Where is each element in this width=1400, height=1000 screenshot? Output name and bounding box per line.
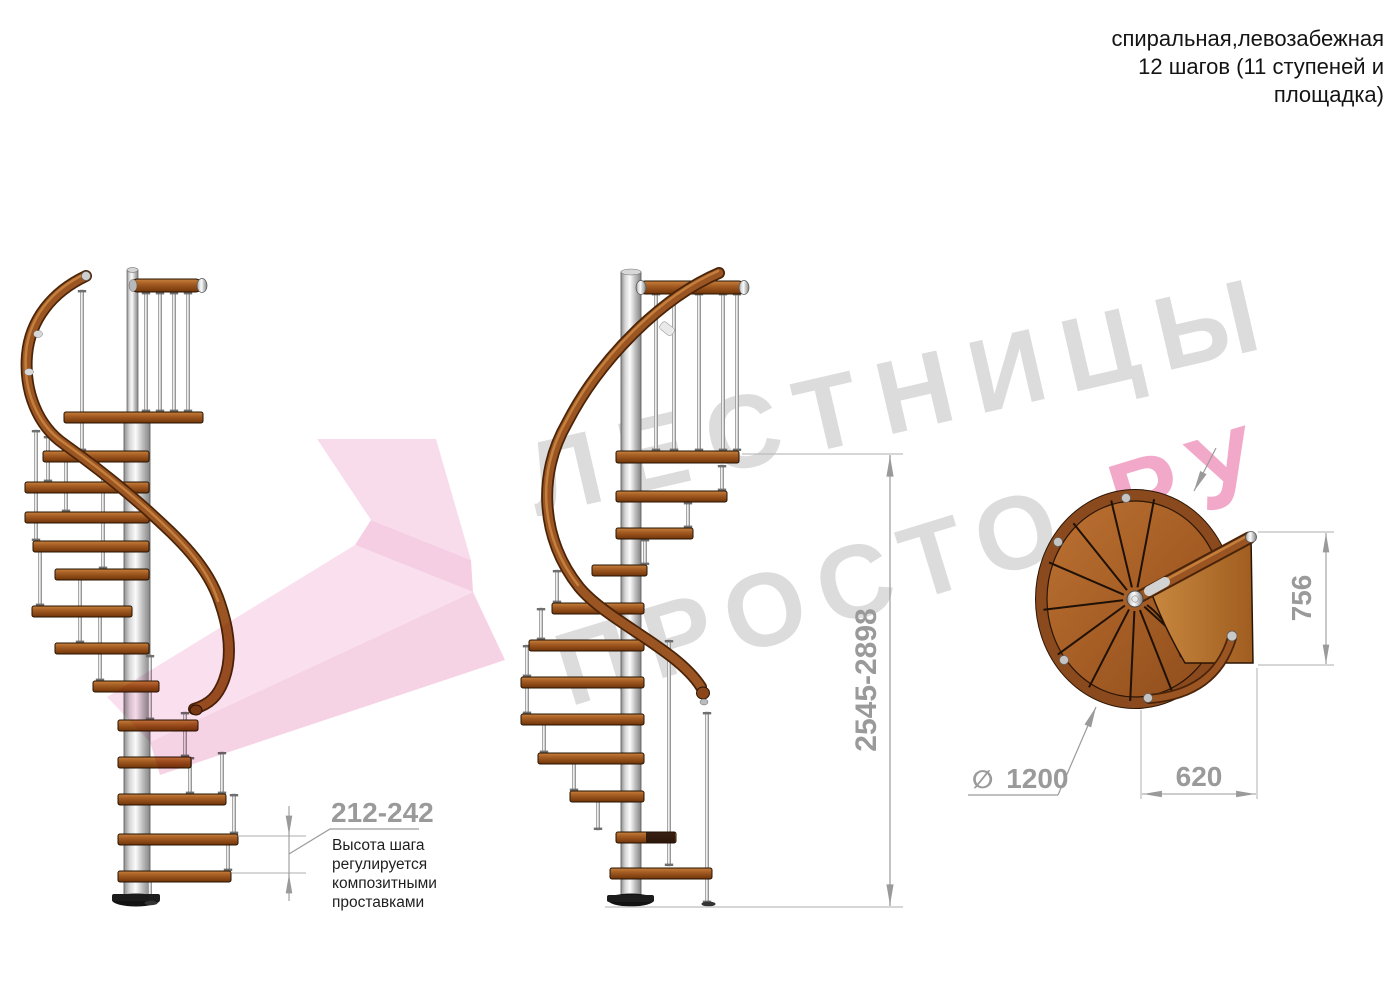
baluster-flange	[78, 290, 86, 292]
total-height-label: 2545-2898	[850, 608, 883, 751]
tread	[32, 606, 132, 617]
baluster	[735, 293, 739, 451]
note-line: композитными	[332, 875, 437, 892]
tread	[521, 677, 644, 688]
tread	[25, 512, 149, 523]
baluster	[672, 293, 676, 451]
technical-drawing-page: ЛЕСТНИЦЫ ПРОСТО.РУ	[0, 0, 1400, 1000]
tread	[592, 565, 647, 576]
baluster	[144, 292, 148, 412]
tread	[570, 791, 644, 802]
diameter-symbol: ∅	[972, 766, 993, 794]
handrail-joint	[129, 280, 137, 292]
handrail-end-cap	[636, 281, 646, 295]
baluster-flange	[665, 640, 673, 642]
title-block: спиральная,левозабежная 12 шагов (11 сту…	[1111, 26, 1384, 107]
tread	[55, 569, 149, 580]
baluster-flange	[146, 655, 154, 657]
rail-top-cap	[82, 272, 91, 281]
baluster	[697, 293, 701, 451]
baluster	[232, 794, 236, 834]
tread	[521, 714, 644, 725]
baluster	[555, 570, 559, 603]
tread	[616, 451, 739, 463]
dimension-plan-depth: 756	[1258, 532, 1334, 665]
step-height-label: 212-242	[331, 797, 434, 828]
base-plate	[607, 895, 654, 902]
baluster-flange	[537, 608, 545, 610]
rail-cap	[1227, 631, 1237, 641]
diameter-value: 1200	[1006, 763, 1068, 794]
tread	[33, 541, 149, 552]
handrail-end-cap	[197, 279, 207, 293]
baluster-flange	[32, 430, 40, 432]
rail-joint	[700, 699, 708, 705]
note-line: проставками	[332, 894, 424, 911]
baluster	[539, 608, 543, 640]
tread-shadow	[646, 832, 675, 843]
baluster-flange	[553, 570, 561, 572]
step-height-note: Высота шага регулируется композитными пр…	[332, 837, 441, 911]
rail-joint	[34, 331, 43, 338]
landing-handrail	[131, 279, 202, 292]
baluster	[525, 645, 529, 677]
diameter-label: ∅ 1200	[972, 763, 1069, 794]
tread	[538, 753, 644, 764]
baluster-foot	[702, 902, 716, 907]
rail-joint	[25, 369, 34, 376]
title-line: спиральная,левозабежная	[1111, 26, 1384, 51]
tread	[118, 834, 238, 845]
dimension-diameter: ∅ 1200	[968, 707, 1096, 795]
note-line: Высота шага	[332, 837, 425, 854]
baluster	[220, 752, 224, 794]
baluster-flange	[665, 864, 673, 866]
title-line: 12 шагов (11 ступеней и	[1138, 54, 1384, 79]
baluster-foot	[145, 901, 158, 905]
note-line: регулируется	[332, 856, 427, 873]
baluster	[186, 292, 190, 412]
baluster	[721, 293, 725, 451]
plan-depth-label: 756	[1286, 575, 1317, 622]
rail-end-cap	[697, 687, 710, 699]
title-line: площадка)	[1274, 82, 1384, 107]
plan-width-label: 620	[1176, 761, 1223, 792]
watermark-arrow-logo	[107, 439, 505, 775]
baluster	[643, 539, 647, 565]
baluster	[80, 290, 84, 451]
handrail-end-cap	[739, 281, 749, 295]
tread	[616, 491, 727, 502]
pole-cap	[621, 269, 641, 275]
plan-center-hub	[1132, 596, 1138, 602]
baluster	[172, 292, 176, 412]
spiral-staircase-drawing: ЛЕСТНИЦЫ ПРОСТО.РУ	[0, 0, 1400, 1000]
tread	[616, 528, 693, 539]
left-staircase-elevation	[25, 268, 239, 907]
tread	[64, 412, 203, 423]
baluster	[158, 292, 162, 412]
tread	[55, 643, 149, 654]
baluster-flange	[703, 712, 711, 714]
baluster-flange	[594, 828, 602, 830]
dimension-step-height: 212-242 Высота шага регулируется компози…	[232, 797, 441, 911]
tread	[118, 871, 231, 882]
baluster-flange	[230, 794, 238, 796]
center-pole	[621, 272, 641, 902]
center-post-top	[127, 270, 138, 420]
baluster	[720, 465, 724, 491]
baluster	[38, 545, 42, 606]
handrail-end-cap	[1246, 532, 1257, 543]
baluster-flange	[718, 465, 726, 467]
tread	[529, 640, 644, 651]
baluster	[686, 502, 690, 528]
tread	[610, 868, 712, 879]
post-cap	[127, 268, 138, 273]
tread	[118, 794, 226, 805]
base-plate	[112, 894, 160, 901]
